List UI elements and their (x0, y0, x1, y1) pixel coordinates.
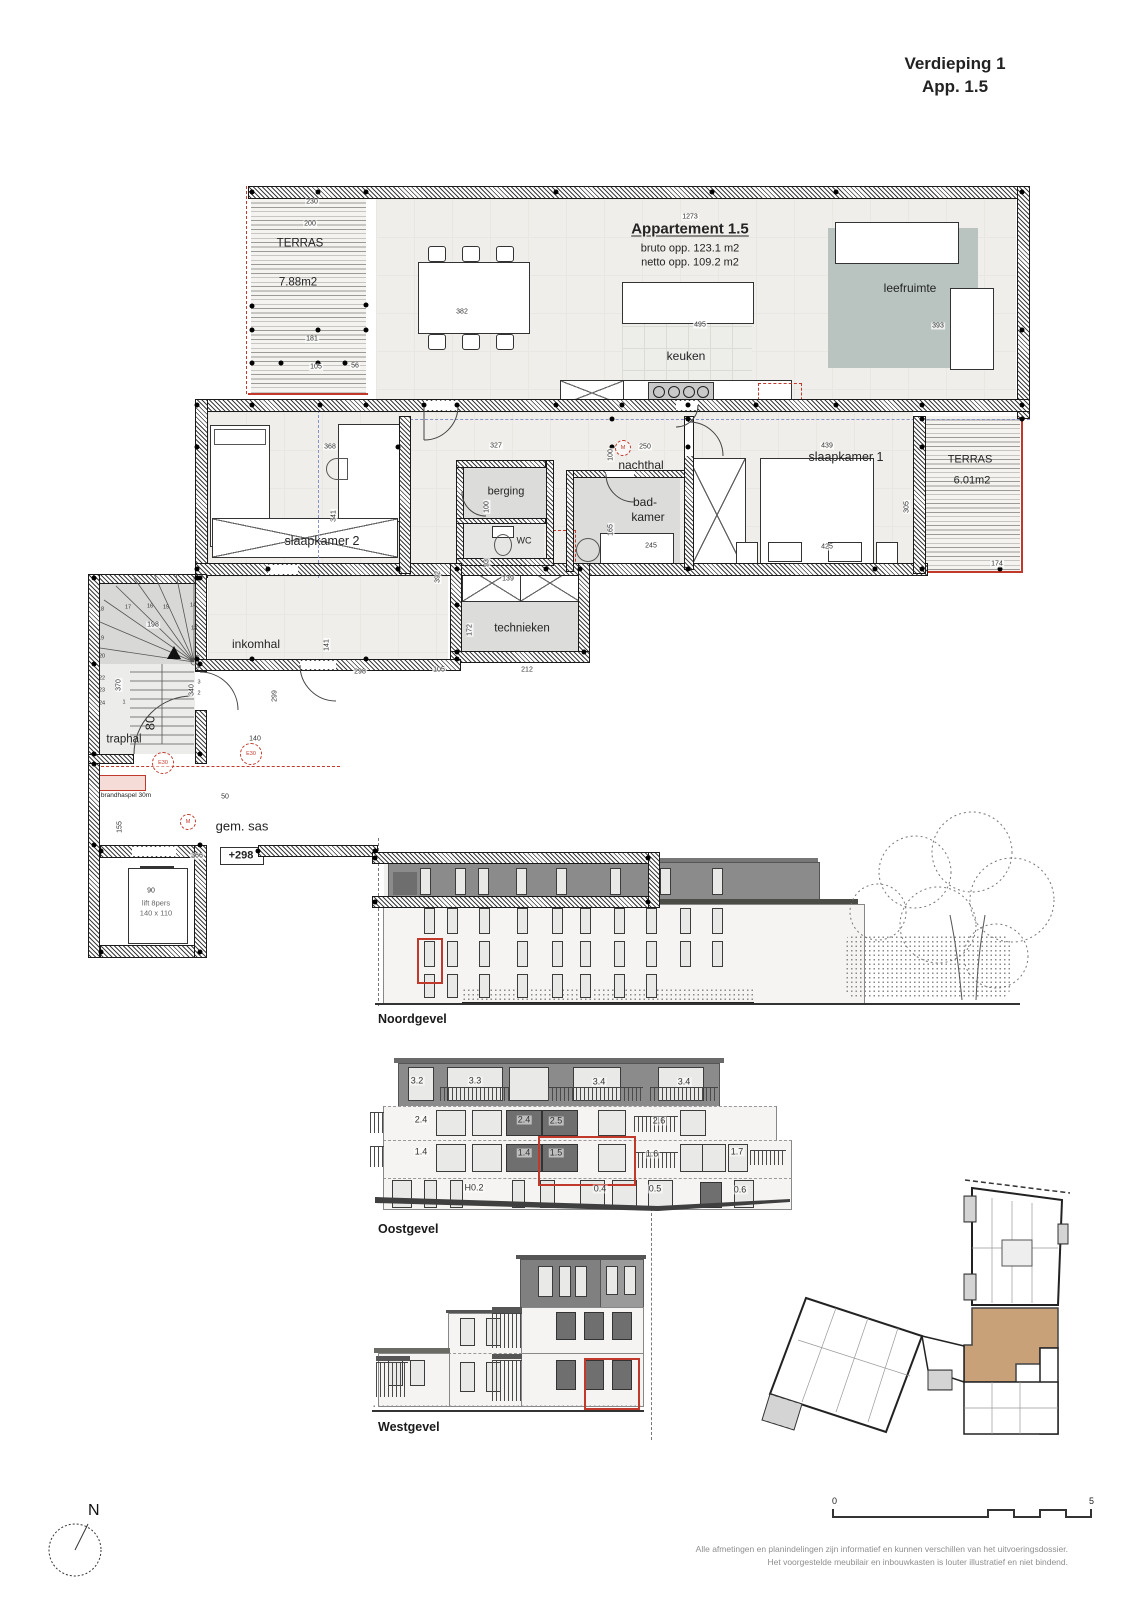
unit-label: 1.7 (730, 1148, 745, 1157)
junction-dot (250, 657, 255, 662)
oost-ground-slope (658, 1199, 790, 1211)
unit-label: 1.4 (414, 1148, 429, 1157)
junction-dot (610, 417, 615, 422)
m-label: M (186, 819, 191, 825)
junction-dot (1020, 190, 1025, 195)
dim-label: 230 (305, 199, 319, 206)
stair-step-number: 19 (98, 637, 104, 642)
junction-dot (620, 403, 625, 408)
dim-label: 200 (303, 221, 317, 228)
dim-label: 141 (324, 638, 331, 652)
dim-label: 425 (820, 544, 834, 551)
door-arc (424, 406, 458, 440)
dim-label: 1273 (681, 214, 699, 221)
junction-dot (92, 762, 97, 767)
door-arc (462, 492, 486, 516)
plan-sheet: Verdieping 1 App. 1.5 (0, 0, 1145, 1620)
noord-apartment-highlight (417, 938, 443, 984)
dim-label: 90 (146, 888, 156, 895)
junction-dot (99, 950, 104, 955)
fire-rating-marker: E30 (152, 752, 174, 774)
unit-label: 3.3 (468, 1077, 483, 1086)
dim-label: 299 (272, 689, 279, 703)
dim-label: 139 (501, 576, 515, 583)
dim-label: 181 (305, 336, 319, 343)
dim-label: 93 (484, 558, 491, 568)
junction-dot (266, 567, 271, 572)
dim-label: 250 (638, 444, 652, 451)
junction-dot (250, 304, 255, 309)
dim-label: 439 (820, 443, 834, 450)
tree-foliage (850, 812, 1054, 988)
stair-step-number: 4 (196, 666, 199, 671)
junction-dot (195, 403, 200, 408)
junction-dot (396, 445, 401, 450)
ventilation-marker: M (615, 440, 631, 456)
dim-label: 100 (484, 500, 491, 514)
e30-label: E30 (246, 751, 256, 757)
stair-step-number: 3 (197, 681, 200, 686)
m-label: M (621, 445, 626, 451)
unit-label: 0.5 (648, 1185, 663, 1194)
dim-label: 393 (931, 323, 945, 330)
door-arc (300, 665, 336, 701)
junction-dot (686, 445, 691, 450)
door-arc (134, 696, 192, 754)
junction-dot (422, 403, 427, 408)
stair-step-number: 2 (197, 692, 200, 697)
junction-dot (455, 650, 460, 655)
junction-dot (364, 190, 369, 195)
junction-dot (686, 403, 691, 408)
dim-label: 368 (323, 444, 337, 451)
e30-label: E30 (158, 760, 168, 766)
junction-dot (316, 190, 321, 195)
junction-dot (686, 417, 691, 422)
dim-label: 370 (116, 678, 123, 692)
junction-dot (686, 567, 691, 572)
unit-label: 0.4 (593, 1185, 608, 1194)
stair-step-number: 22 (99, 677, 105, 682)
junction-dot (710, 190, 715, 195)
dim-label: 327 (489, 443, 503, 450)
junction-dot (578, 567, 583, 572)
dim-label: 198 (146, 622, 160, 629)
unit-label: 0.6 (733, 1186, 748, 1195)
junction-dot (364, 657, 369, 662)
junction-dot (198, 576, 203, 581)
junction-dot (364, 328, 369, 333)
unit-label: 2.4 (517, 1116, 532, 1125)
dim-label: 100 (608, 448, 615, 462)
stair-step-number: 17 (125, 606, 131, 611)
junction-dot (364, 403, 369, 408)
dim-label: 50 (220, 794, 230, 801)
unit-label: 3.4 (677, 1078, 692, 1087)
junction-dot (554, 190, 559, 195)
dim-label: 212 (520, 667, 534, 674)
dim-label: 366 (190, 853, 204, 860)
junction-dot (920, 445, 925, 450)
unit-label: 3.2 (410, 1077, 425, 1086)
junction-dot (92, 662, 97, 667)
stair-step-number: 15 (163, 606, 169, 611)
junction-dot (834, 190, 839, 195)
dim-label: 305 (904, 500, 911, 514)
junction-dot (646, 856, 651, 861)
unit-label: 1.6 (645, 1150, 660, 1159)
unit-label: 2.4 (414, 1116, 429, 1125)
junction-dot (455, 603, 460, 608)
junction-dot (754, 403, 759, 408)
junction-dot (455, 657, 460, 662)
dim-label: 174 (990, 561, 1004, 568)
dim-label: 495 (693, 322, 707, 329)
junction-dot (920, 567, 925, 572)
stair-treads (100, 574, 197, 744)
junction-dot (99, 849, 104, 854)
junction-dot (873, 567, 878, 572)
unit-label: 2.5 (549, 1117, 564, 1126)
dim-label: 155 (117, 820, 124, 834)
junction-dot (582, 650, 587, 655)
junction-dot (250, 403, 255, 408)
junction-dot (455, 403, 460, 408)
ventilation-marker: M (180, 814, 196, 830)
tree-trunk (950, 915, 985, 1000)
unit-label: 2.6 (652, 1117, 667, 1126)
junction-dot (646, 900, 651, 905)
unit-label: 1.4 (517, 1149, 532, 1158)
door-arc (689, 422, 723, 456)
junction-dot (920, 417, 925, 422)
dim-label: 56 (350, 363, 360, 370)
unit-label: 3.4 (592, 1078, 607, 1087)
stair-step-number: 18 (98, 608, 104, 613)
junction-dot (195, 567, 200, 572)
unit-label: 1.5 (549, 1149, 564, 1158)
dim-label: 392 (435, 570, 442, 584)
junction-dot (198, 843, 203, 848)
dim-label: 165 (608, 523, 615, 537)
junction-dot (198, 752, 203, 757)
junction-dot (373, 849, 378, 854)
stair-step-number: 23 (99, 689, 105, 694)
junction-dot (373, 856, 378, 861)
stair-step-number: 13 (191, 627, 197, 632)
west-apartment-highlight (584, 1358, 640, 1410)
junction-dot (1020, 328, 1025, 333)
junction-dot (396, 567, 401, 572)
dim-label: 341 (331, 509, 338, 523)
junction-dot (250, 190, 255, 195)
junction-dot (256, 849, 261, 854)
stair-step-number: 24 (99, 702, 105, 707)
junction-dot (279, 361, 284, 366)
stair-step-number: 1 (122, 701, 125, 706)
dim-label: 172 (467, 623, 474, 637)
dim-label: 105 (309, 364, 323, 371)
dim-label: 140 (248, 736, 262, 743)
junction-dot (198, 950, 203, 955)
junction-dot (920, 403, 925, 408)
junction-dot (92, 576, 97, 581)
fire-rating-marker: E30 (240, 743, 262, 765)
junction-dot (92, 843, 97, 848)
dim-label: 245 (644, 543, 658, 550)
junction-dot (92, 752, 97, 757)
dim-label: 382 (455, 309, 469, 316)
junction-dot (544, 567, 549, 572)
junction-dot (1020, 417, 1025, 422)
junction-dot (1020, 403, 1025, 408)
junction-dot (834, 403, 839, 408)
junction-dot (250, 328, 255, 333)
unit-label: H0.2 (463, 1184, 484, 1193)
oost-ground-slope (375, 1197, 658, 1211)
plan-linework (0, 0, 1145, 1620)
stair-step-number: 16 (147, 605, 153, 610)
junction-dot (195, 445, 200, 450)
junction-dot (364, 303, 369, 308)
junction-dot (455, 567, 460, 572)
door-arc (606, 474, 634, 502)
dim-label: 298 (353, 669, 367, 676)
oost-apartment-highlight (538, 1136, 636, 1186)
dim-label: 105 (432, 667, 446, 674)
junction-dot (373, 900, 378, 905)
door-arc (200, 672, 238, 710)
junction-dot (250, 361, 255, 366)
dim-label: 340 (189, 683, 196, 697)
junction-dot (343, 361, 348, 366)
stair-direction-arrow (167, 646, 181, 659)
stair-step-number: 14 (190, 604, 196, 609)
stair-step-number: 20 (99, 655, 105, 660)
junction-dot (554, 403, 559, 408)
stair-step-number: 5 (196, 655, 199, 660)
junction-dot (318, 403, 323, 408)
junction-dot (316, 328, 321, 333)
